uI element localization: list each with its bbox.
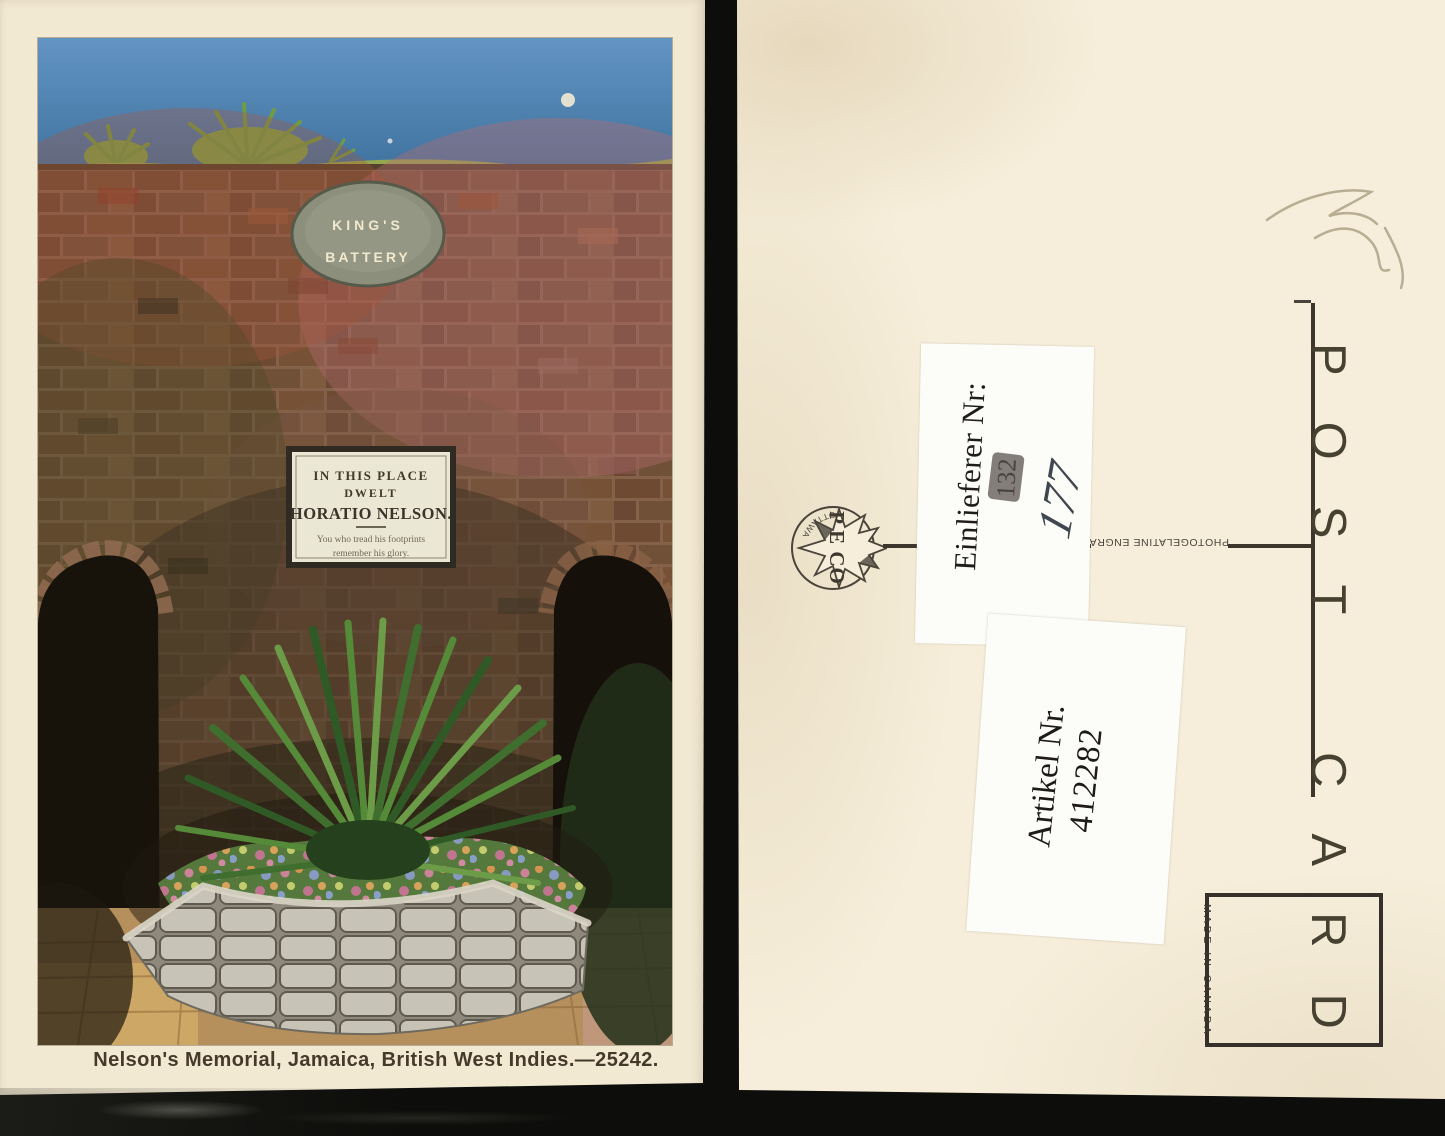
stamp-box: MADE IN CANADA: [1205, 893, 1383, 1047]
plaque-line5: remember his glory.: [333, 549, 409, 559]
sign-line2: BATTERY: [325, 249, 411, 265]
address-line-tick: [1294, 300, 1311, 303]
table-surface-streaks: [0, 1088, 740, 1136]
plaque-line2: DWELT: [344, 486, 398, 500]
kings-battery-sign: KING'S BATTERY: [292, 182, 444, 286]
postcard-front: KING'S BATTERY IN THIS PLACE DWELT HORAT…: [0, 0, 705, 1100]
memorial-photo: KING'S BATTERY IN THIS PLACE DWELT HORAT…: [38, 38, 672, 1045]
postcard-scan: KING'S BATTERY IN THIS PLACE DWELT HORAT…: [0, 0, 1445, 1136]
einlieferer-number-scribbled: 132: [991, 458, 1023, 499]
sign-line1: KING'S: [332, 217, 404, 233]
plaque-line3: HORATIO NELSON.: [290, 504, 452, 523]
einlieferer-text: Einlieferer Nr: 132: [947, 381, 1027, 574]
artikel-text: Artikel Nr. 412282: [1021, 703, 1113, 853]
postcard-back: P E CO OTTAWA PHOTOGELATINE ENGRA POST C…: [737, 0, 1445, 1136]
peco-logo: P E CO OTTAWA: [787, 492, 887, 604]
post-card-word1: POST: [1300, 343, 1356, 660]
made-in-canada-text: MADE IN CANADA: [1201, 904, 1213, 1036]
nelson-plaque: IN THIS PLACE DWELT HORATIO NELSON. You …: [286, 446, 456, 568]
plaque-line1: IN THIS PLACE: [313, 468, 428, 483]
pencil-squiggle: [1257, 158, 1432, 298]
printer-credit: PHOTOGELATINE ENGRA: [1089, 536, 1229, 548]
peco-letters: P E CO: [825, 511, 849, 585]
front-caption: Nelson's Memorial, Jamaica, British West…: [38, 1049, 672, 1072]
plaque-line4: You who tread his footprints: [317, 534, 426, 545]
moon: [561, 93, 575, 107]
